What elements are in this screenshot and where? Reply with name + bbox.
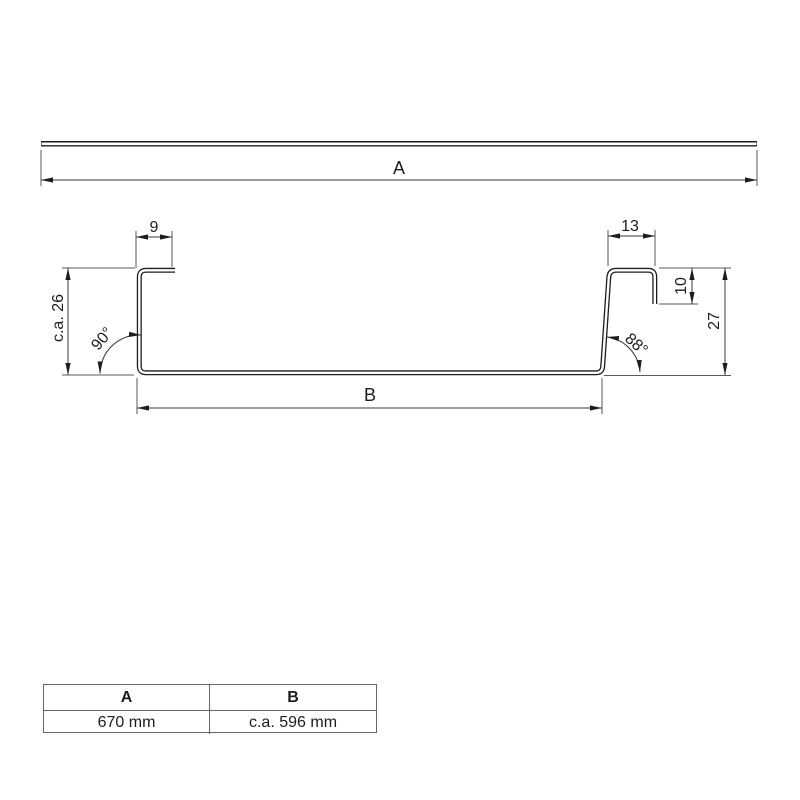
dimension-13-label: 13	[621, 218, 639, 235]
table-header-b: B	[210, 685, 376, 711]
dimension-b-web-width: B	[137, 378, 602, 414]
dimension-ca26-label: c.a. 26	[50, 294, 67, 342]
dimension-27-label: 27	[706, 312, 723, 330]
dimension-left-flange-width: 9	[136, 219, 172, 268]
dimension-b-label: B	[364, 385, 376, 405]
angle-left-90: 90°	[88, 324, 141, 373]
table-value-a: 670 mm	[44, 711, 210, 734]
dimension-10-label: 10	[673, 277, 690, 295]
table-header-a: A	[44, 685, 210, 711]
angle-right-88: 88°	[607, 330, 651, 372]
profile-dimension-drawing: A 9 13 c.a. 26	[0, 0, 800, 800]
table-value-b: c.a. 596 mm	[210, 711, 376, 734]
dimension-9-label: 9	[150, 219, 159, 236]
dimension-a-label: A	[393, 158, 405, 178]
angle-90-label: 90°	[88, 324, 117, 353]
angle-88-label: 88°	[621, 330, 650, 359]
dimension-right-flange-width: 13	[608, 218, 655, 266]
dimension-a-overall-width: A	[41, 150, 757, 186]
dimensions-table: A B 670 mm c.a. 596 mm	[43, 684, 377, 733]
dimension-left-height: c.a. 26	[50, 268, 135, 375]
cross-section-profile	[139, 270, 655, 373]
dimension-right-height: 27	[604, 268, 731, 376]
dimension-right-lip-length: 10	[659, 268, 698, 304]
technical-drawing-page: A 9 13 c.a. 26	[0, 0, 800, 800]
